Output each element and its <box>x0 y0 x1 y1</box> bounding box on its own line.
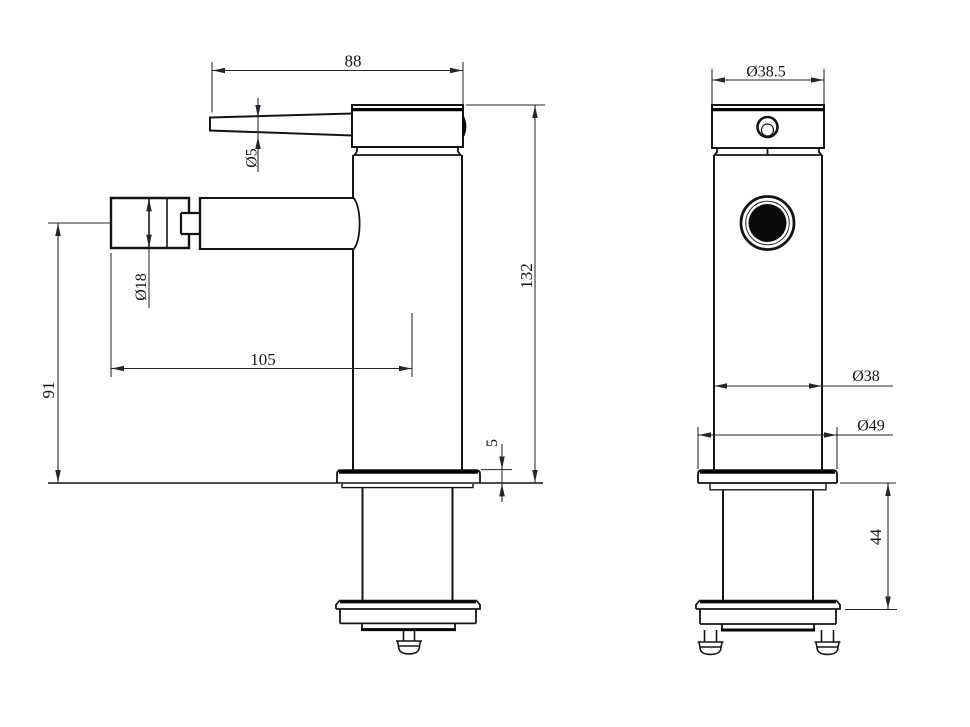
dim-mounting-depth-label: 44 <box>868 529 885 545</box>
dim-mounting-depth: 44 <box>840 483 897 610</box>
side-head-end-cap <box>462 115 466 139</box>
dim-base-plate-diameter: Ø49 <box>698 418 893 470</box>
technical-drawing-canvas: 88 Ø5 Ø18 105 91 <box>0 0 970 727</box>
side-body-column <box>353 155 462 470</box>
dim-spout-reach-label: 105 <box>250 350 276 369</box>
front-fixing-screw-left <box>698 630 724 654</box>
front-set-screw-inner <box>762 124 774 136</box>
dim-base-plate-thickness-label: 5 <box>484 439 501 447</box>
front-spout-outlet-bore <box>749 204 787 242</box>
front-head-body <box>712 105 824 148</box>
dim-lines <box>48 223 110 483</box>
side-lever-handle <box>210 114 352 136</box>
dim-lines <box>840 483 897 610</box>
front-dimensions: Ø38.5 Ø38 Ø49 44 <box>698 64 897 610</box>
side-aerator-panel-lines <box>149 198 167 248</box>
front-body-column <box>714 155 822 470</box>
front-set-screw-hole <box>758 117 778 137</box>
front-neck-joint <box>715 148 822 155</box>
faucet-two-view-drawing: 88 Ø5 Ø18 105 91 <box>0 0 970 727</box>
dim-overall-height: 132 <box>466 105 545 483</box>
side-neck-joint <box>355 147 461 155</box>
dim-aerator-diameter-label: Ø18 <box>133 273 150 301</box>
side-head-body <box>352 105 463 147</box>
dim-head-diameter: Ø38.5 <box>712 64 824 105</box>
dim-base-plate-diameter-label: Ø49 <box>857 418 885 435</box>
dim-lines <box>466 105 545 483</box>
dim-body-diameter: Ø38 <box>714 368 893 386</box>
front-threaded-shank <box>723 490 813 601</box>
front-mounting-nut-body <box>700 609 836 624</box>
side-view <box>48 105 543 654</box>
front-gasket <box>710 484 826 490</box>
dim-lines <box>481 444 512 502</box>
side-aerator-connector <box>181 213 200 234</box>
front-view <box>696 105 841 654</box>
dim-body-diameter-label: Ø38 <box>852 368 880 385</box>
dim-spout-center-height: 91 <box>39 223 110 483</box>
side-dimensions: 88 Ø5 Ø18 105 91 <box>39 52 545 503</box>
dim-spout-center-height-label: 91 <box>39 382 58 399</box>
side-threaded-shank <box>363 488 453 601</box>
dim-base-plate-thickness: 5 <box>481 439 512 502</box>
dim-spout-reach: 105 <box>111 253 412 377</box>
side-spout-tube <box>200 198 353 249</box>
dim-aerator-diameter: Ø18 <box>133 198 150 308</box>
front-fixing-screw-right <box>815 630 841 654</box>
side-fixing-screw <box>396 630 422 654</box>
side-aerator-body <box>111 198 189 248</box>
dim-lever-thickness-label: Ø5 <box>244 148 261 168</box>
side-spout-body-fillet <box>353 197 360 250</box>
side-gasket <box>342 484 473 488</box>
dim-lever-thickness: Ø5 <box>244 98 261 172</box>
dim-head-diameter-label: Ø38.5 <box>746 64 786 81</box>
side-mounting-nut-body <box>340 609 476 623</box>
dim-lever-length-label: 88 <box>345 52 362 71</box>
dim-lever-length: 88 <box>212 52 463 113</box>
dim-overall-height-label: 132 <box>517 263 536 289</box>
